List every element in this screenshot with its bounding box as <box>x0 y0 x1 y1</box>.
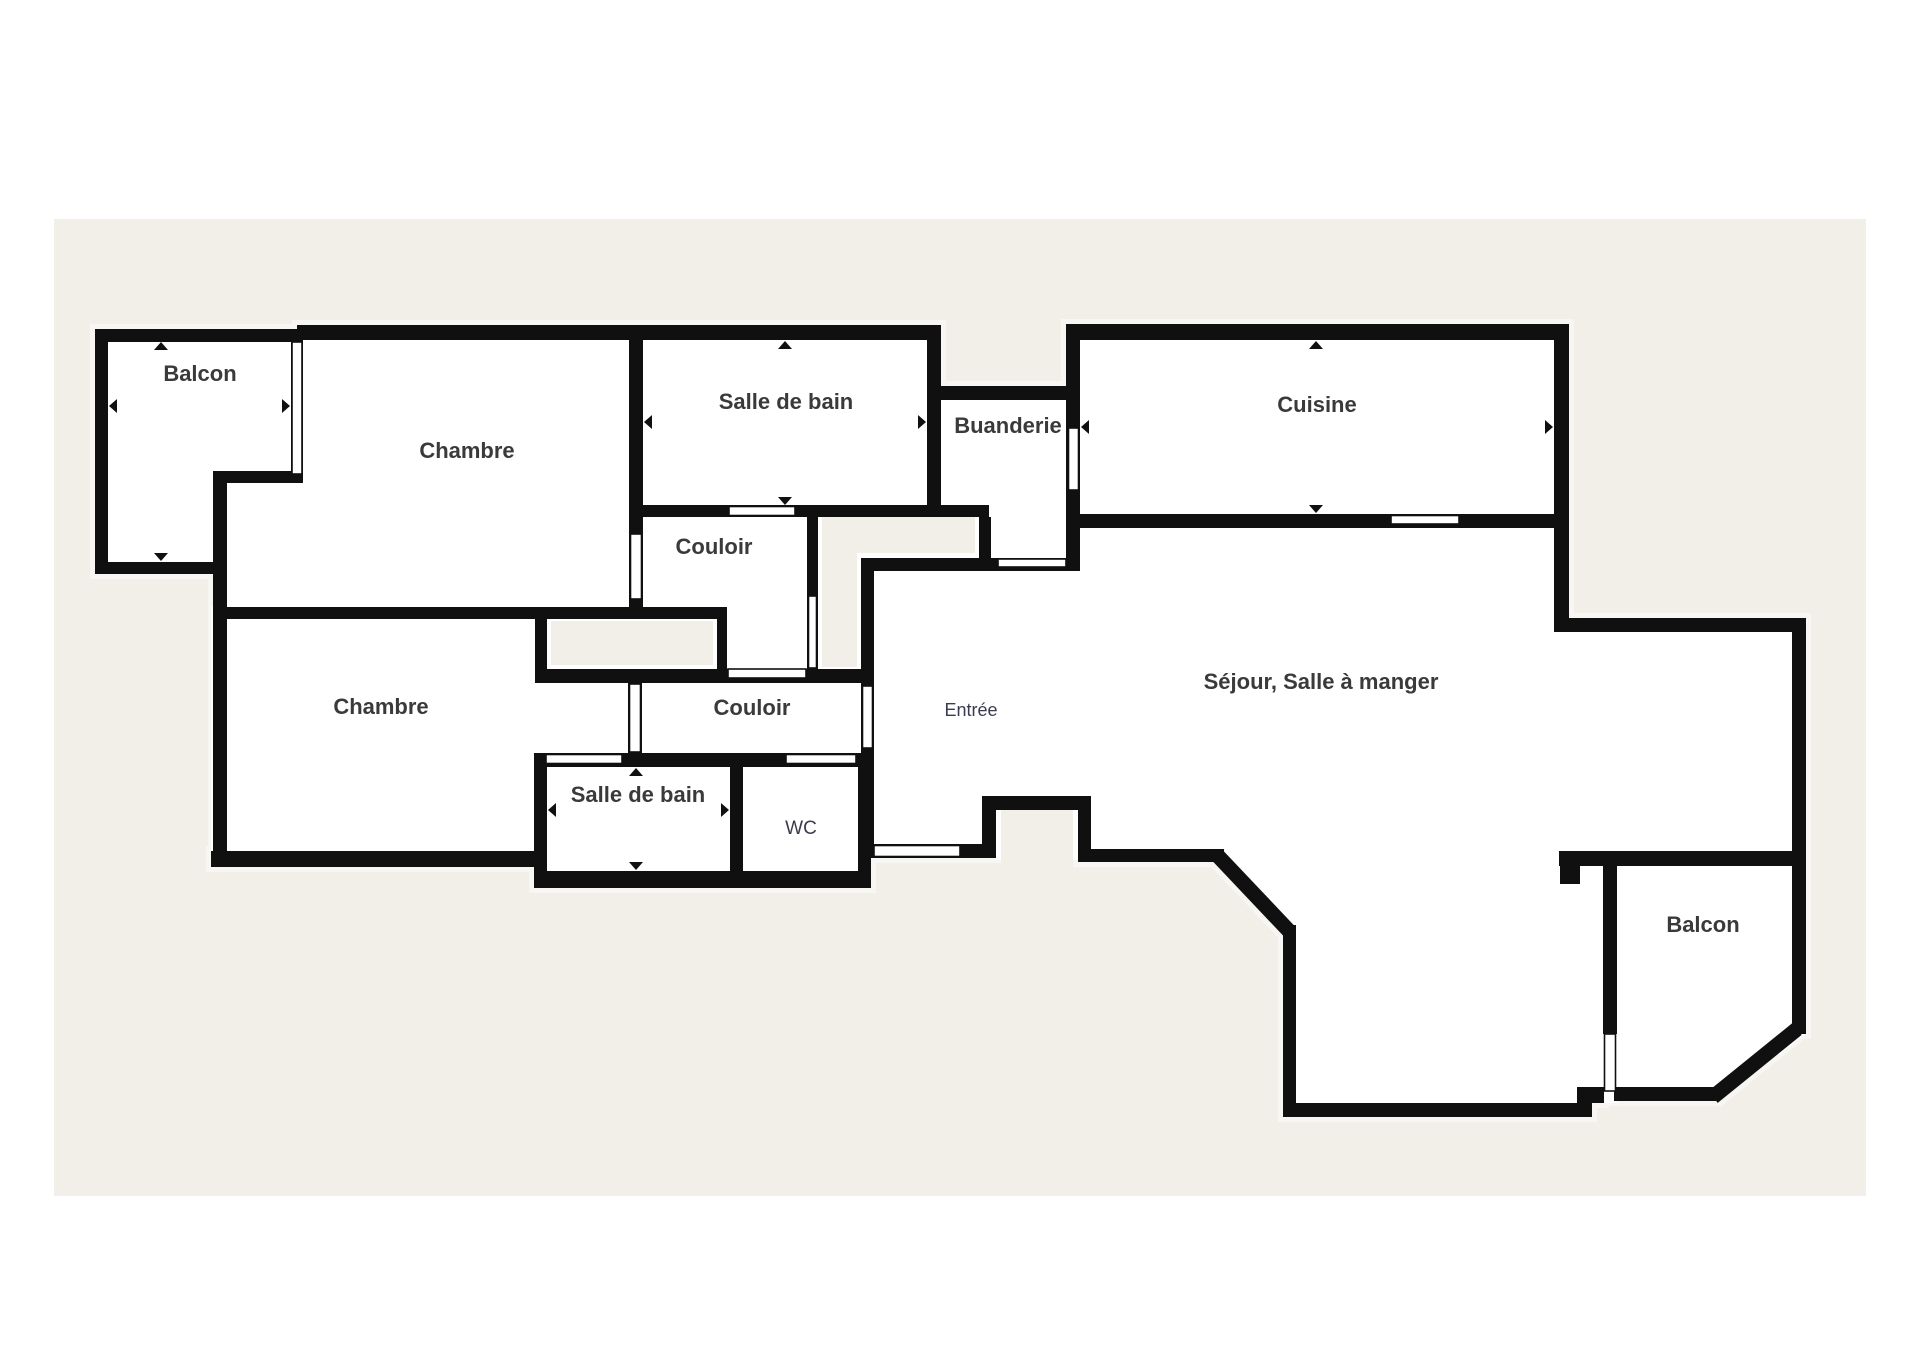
svg-text:Balcon: Balcon <box>1666 912 1739 937</box>
svg-text:Couloir: Couloir <box>676 534 753 559</box>
svg-text:Couloir: Couloir <box>714 695 791 720</box>
svg-text:WC: WC <box>785 818 817 839</box>
svg-text:Balcon: Balcon <box>163 361 236 386</box>
svg-text:Salle de bain: Salle de bain <box>571 782 706 807</box>
svg-text:Salle de bain: Salle de bain <box>719 389 854 414</box>
svg-text:Séjour, Salle à manger: Séjour, Salle à manger <box>1204 669 1439 694</box>
svg-text:Buanderie: Buanderie <box>954 413 1062 438</box>
svg-text:Chambre: Chambre <box>333 694 428 719</box>
svg-text:Entrée: Entrée <box>944 700 997 720</box>
svg-text:Chambre: Chambre <box>419 438 514 463</box>
svg-text:Cuisine: Cuisine <box>1277 392 1356 417</box>
